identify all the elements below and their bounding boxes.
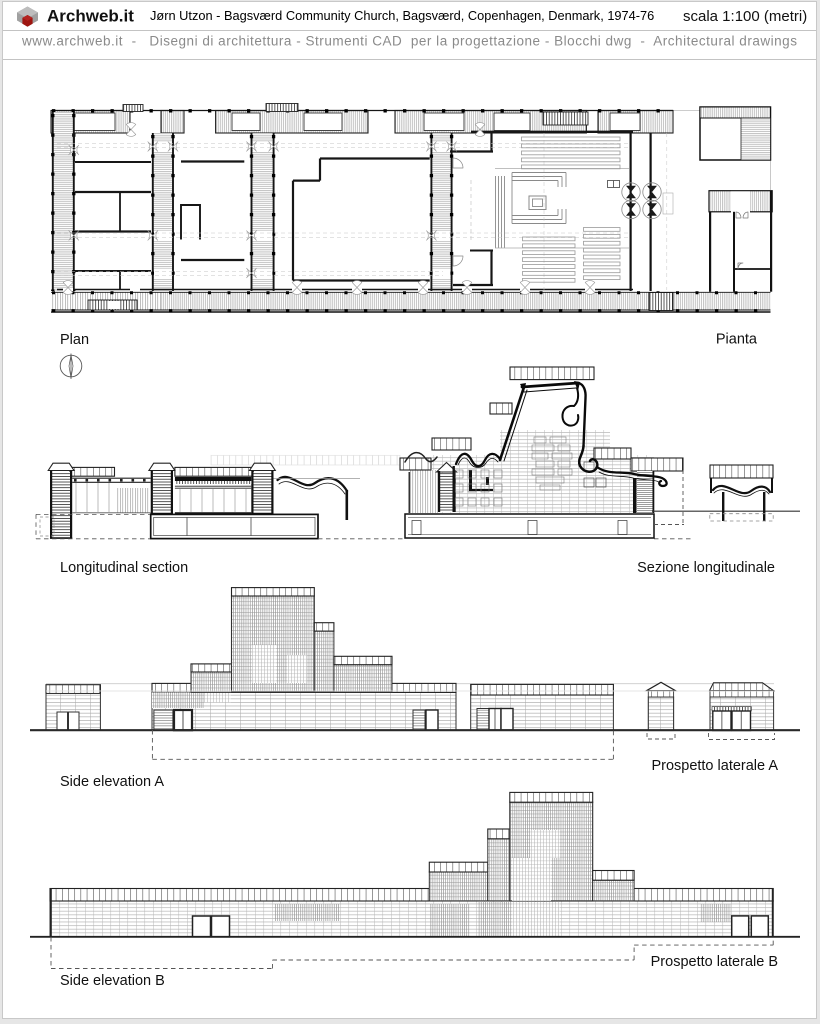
svg-text:Longitudinal section: Longitudinal section: [60, 560, 188, 576]
svg-text:Sezione longitudinale: Sezione longitudinale: [637, 560, 775, 576]
svg-text:Pianta: Pianta: [716, 332, 758, 348]
svg-text:www.archweb.it - Disegni di: www.archweb.it - Disegni di architettura…: [21, 34, 797, 49]
svg-text:Archweb.it: Archweb.it: [47, 7, 134, 26]
svg-text:Jørn Utzon - Bagsværd Communit: Jørn Utzon - Bagsværd Community Church, …: [150, 8, 654, 23]
svg-text:Prospetto laterale B: Prospetto laterale B: [651, 954, 778, 970]
svg-text:Side elevation B: Side elevation B: [60, 973, 165, 989]
svg-text:Prospetto laterale A: Prospetto laterale A: [651, 758, 778, 774]
svg-text:scala 1:100 (metri): scala 1:100 (metri): [683, 8, 807, 25]
svg-text:Side elevation A: Side elevation A: [60, 774, 164, 790]
svg-text:Plan: Plan: [60, 332, 89, 348]
